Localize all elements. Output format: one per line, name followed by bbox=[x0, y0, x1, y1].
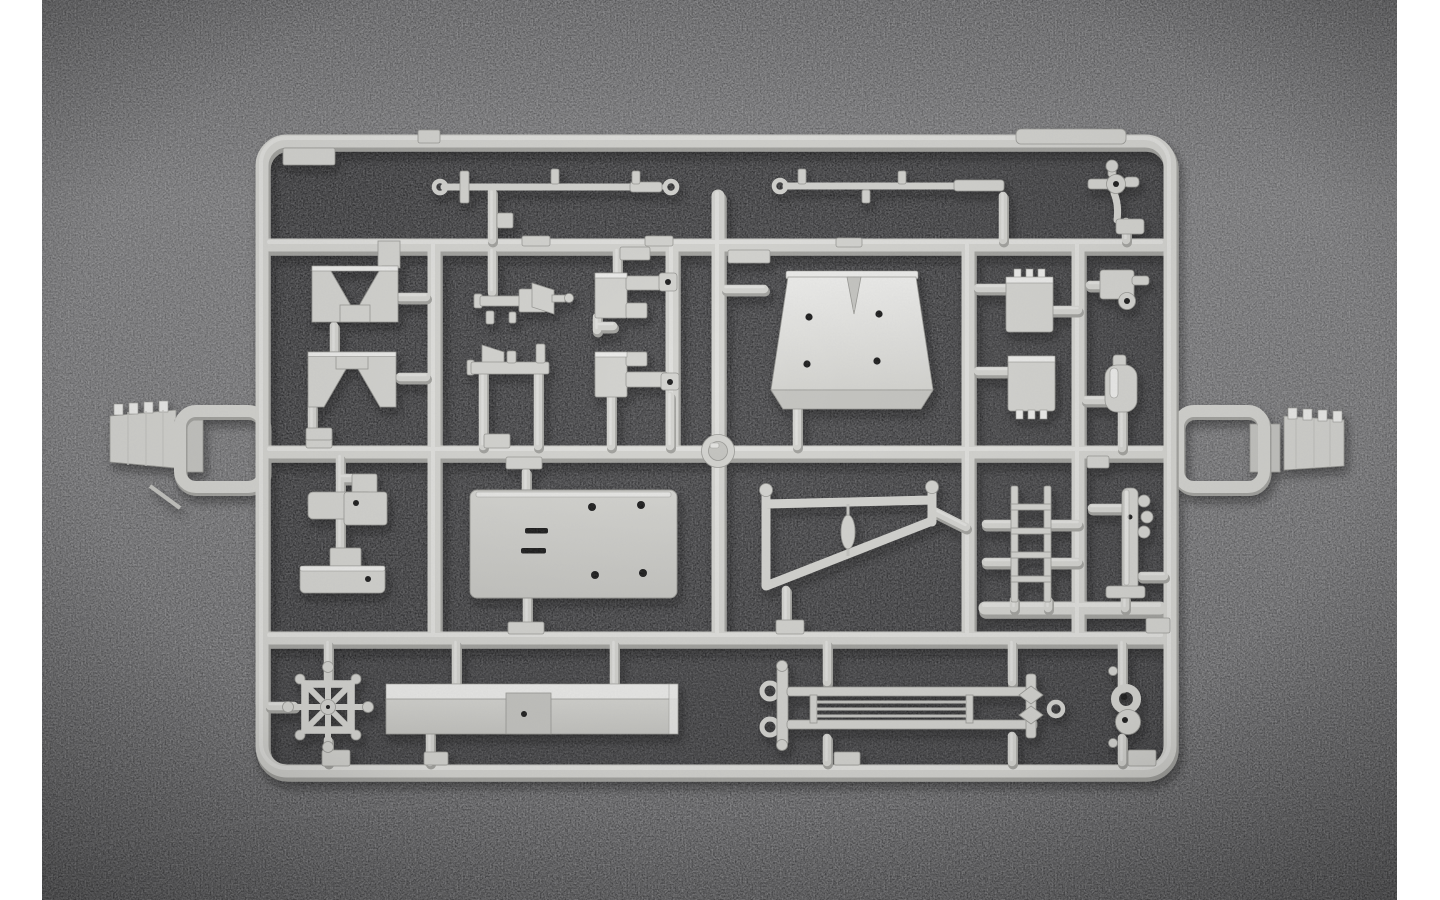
photo-page bbox=[0, 0, 1440, 900]
vignette bbox=[42, 0, 1397, 900]
sprue-photo bbox=[0, 0, 1440, 900]
